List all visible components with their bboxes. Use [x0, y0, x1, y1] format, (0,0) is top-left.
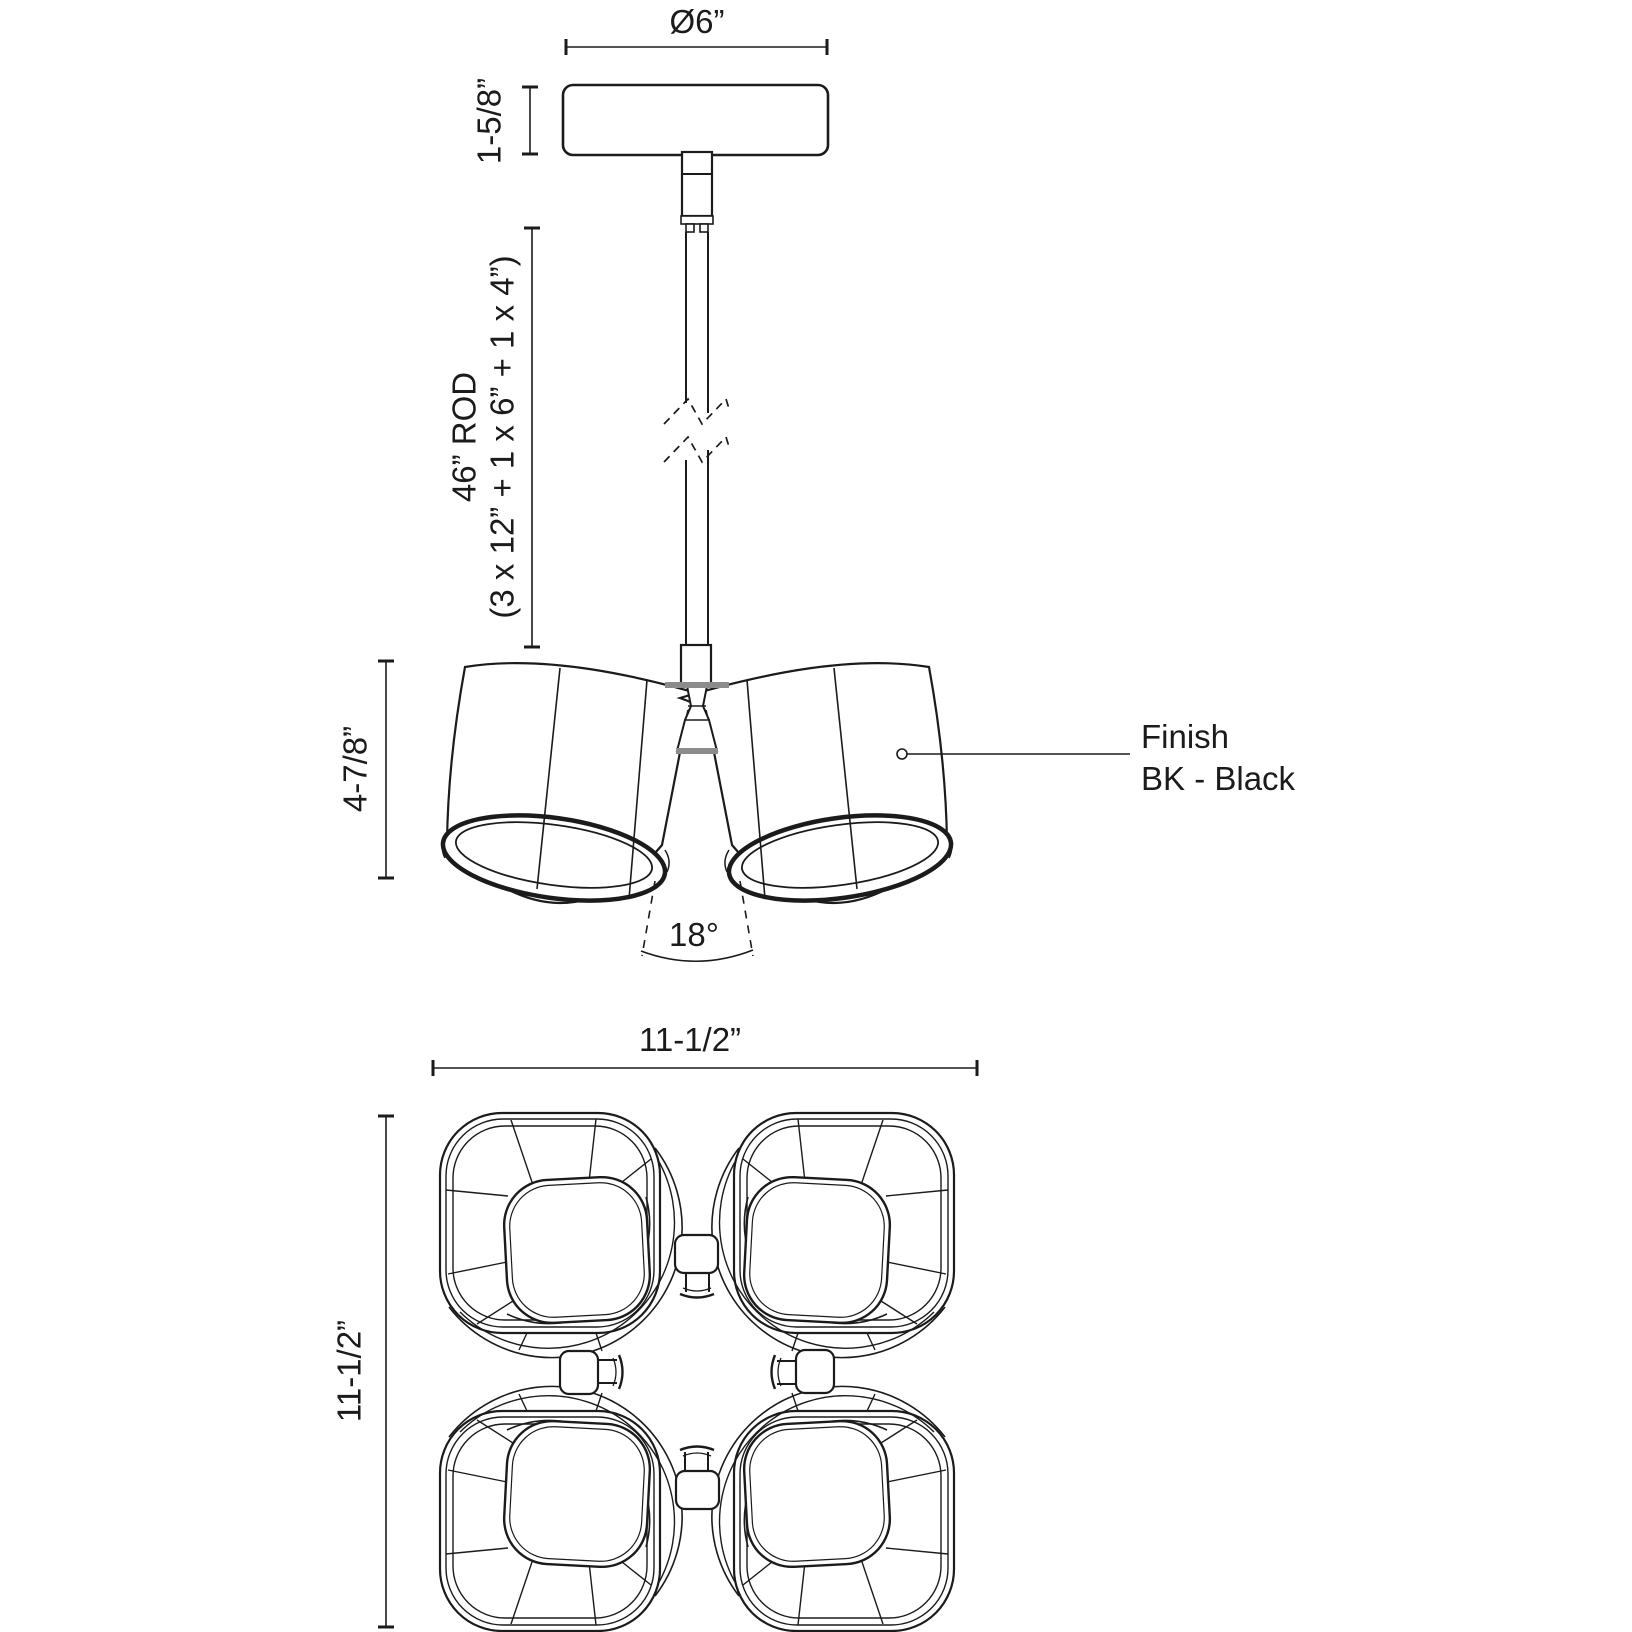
plan-connector-right: [772, 1350, 835, 1393]
plan-shade-bottom-left: [440, 1386, 682, 1631]
rod-length-label-line1: 46” ROD: [446, 372, 483, 502]
plan-shade-bottom-right: [712, 1386, 954, 1631]
rod-length-label-line2: (3 x 12” + 1 x 6” + 1 x 4”): [484, 255, 521, 618]
hub-gray-bar-bottom: [676, 748, 718, 754]
canopy-diameter-label: Ø6”: [669, 3, 724, 40]
shade-height-dimension: 4-7/8”: [337, 661, 394, 878]
finish-callout: Finish BK - Black: [897, 718, 1296, 797]
hub-gray-bar-top: [665, 682, 729, 688]
shade-height-label: 4-7/8”: [337, 726, 374, 812]
front-right-shade: [680, 663, 956, 913]
technical-drawing-page: Ø6” 1-5/8”: [0, 0, 1632, 1632]
plan-shade-top-left: [440, 1113, 682, 1358]
finish-leader-dot: [897, 749, 907, 759]
canopy-diameter-dimension: Ø6”: [566, 3, 827, 55]
front-elevation-view: Ø6” 1-5/8”: [337, 3, 1296, 961]
drawing-canvas: Ø6” 1-5/8”: [0, 0, 1632, 1632]
plan-depth-dimension: 11-1/2”: [331, 1116, 394, 1627]
beam-angle-label: 18°: [669, 916, 719, 953]
plan-view: 11-1/2” 11-1/2”: [331, 1021, 977, 1631]
beam-angle-annotation: 18°: [641, 881, 753, 961]
canopy-height-label: 1-5/8”: [471, 78, 508, 164]
plan-shade-top-right: [712, 1113, 954, 1358]
canopy-height-dimension: 1-5/8”: [471, 78, 538, 164]
hanging-rod: [664, 232, 730, 645]
rod-length-dimension: 46” ROD (3 x 12” + 1 x 6” + 1 x 4”): [446, 228, 540, 647]
plan-connector-top: [675, 1235, 718, 1298]
plan-connector-left: [560, 1351, 623, 1394]
finish-label-line1: Finish: [1141, 718, 1229, 755]
plan-width-dimension: 11-1/2”: [433, 1021, 977, 1076]
plan-width-label: 11-1/2”: [639, 1021, 741, 1058]
ceiling-canopy: [563, 85, 828, 155]
plan-connector-bottom: [676, 1447, 719, 1510]
rod-break-symbol: [664, 399, 730, 462]
finish-label-line2: BK - Black: [1141, 760, 1296, 797]
canopy-stem-fitting: [681, 152, 713, 232]
front-left-shade: [438, 663, 714, 913]
plan-depth-label: 11-1/2”: [331, 1320, 368, 1422]
